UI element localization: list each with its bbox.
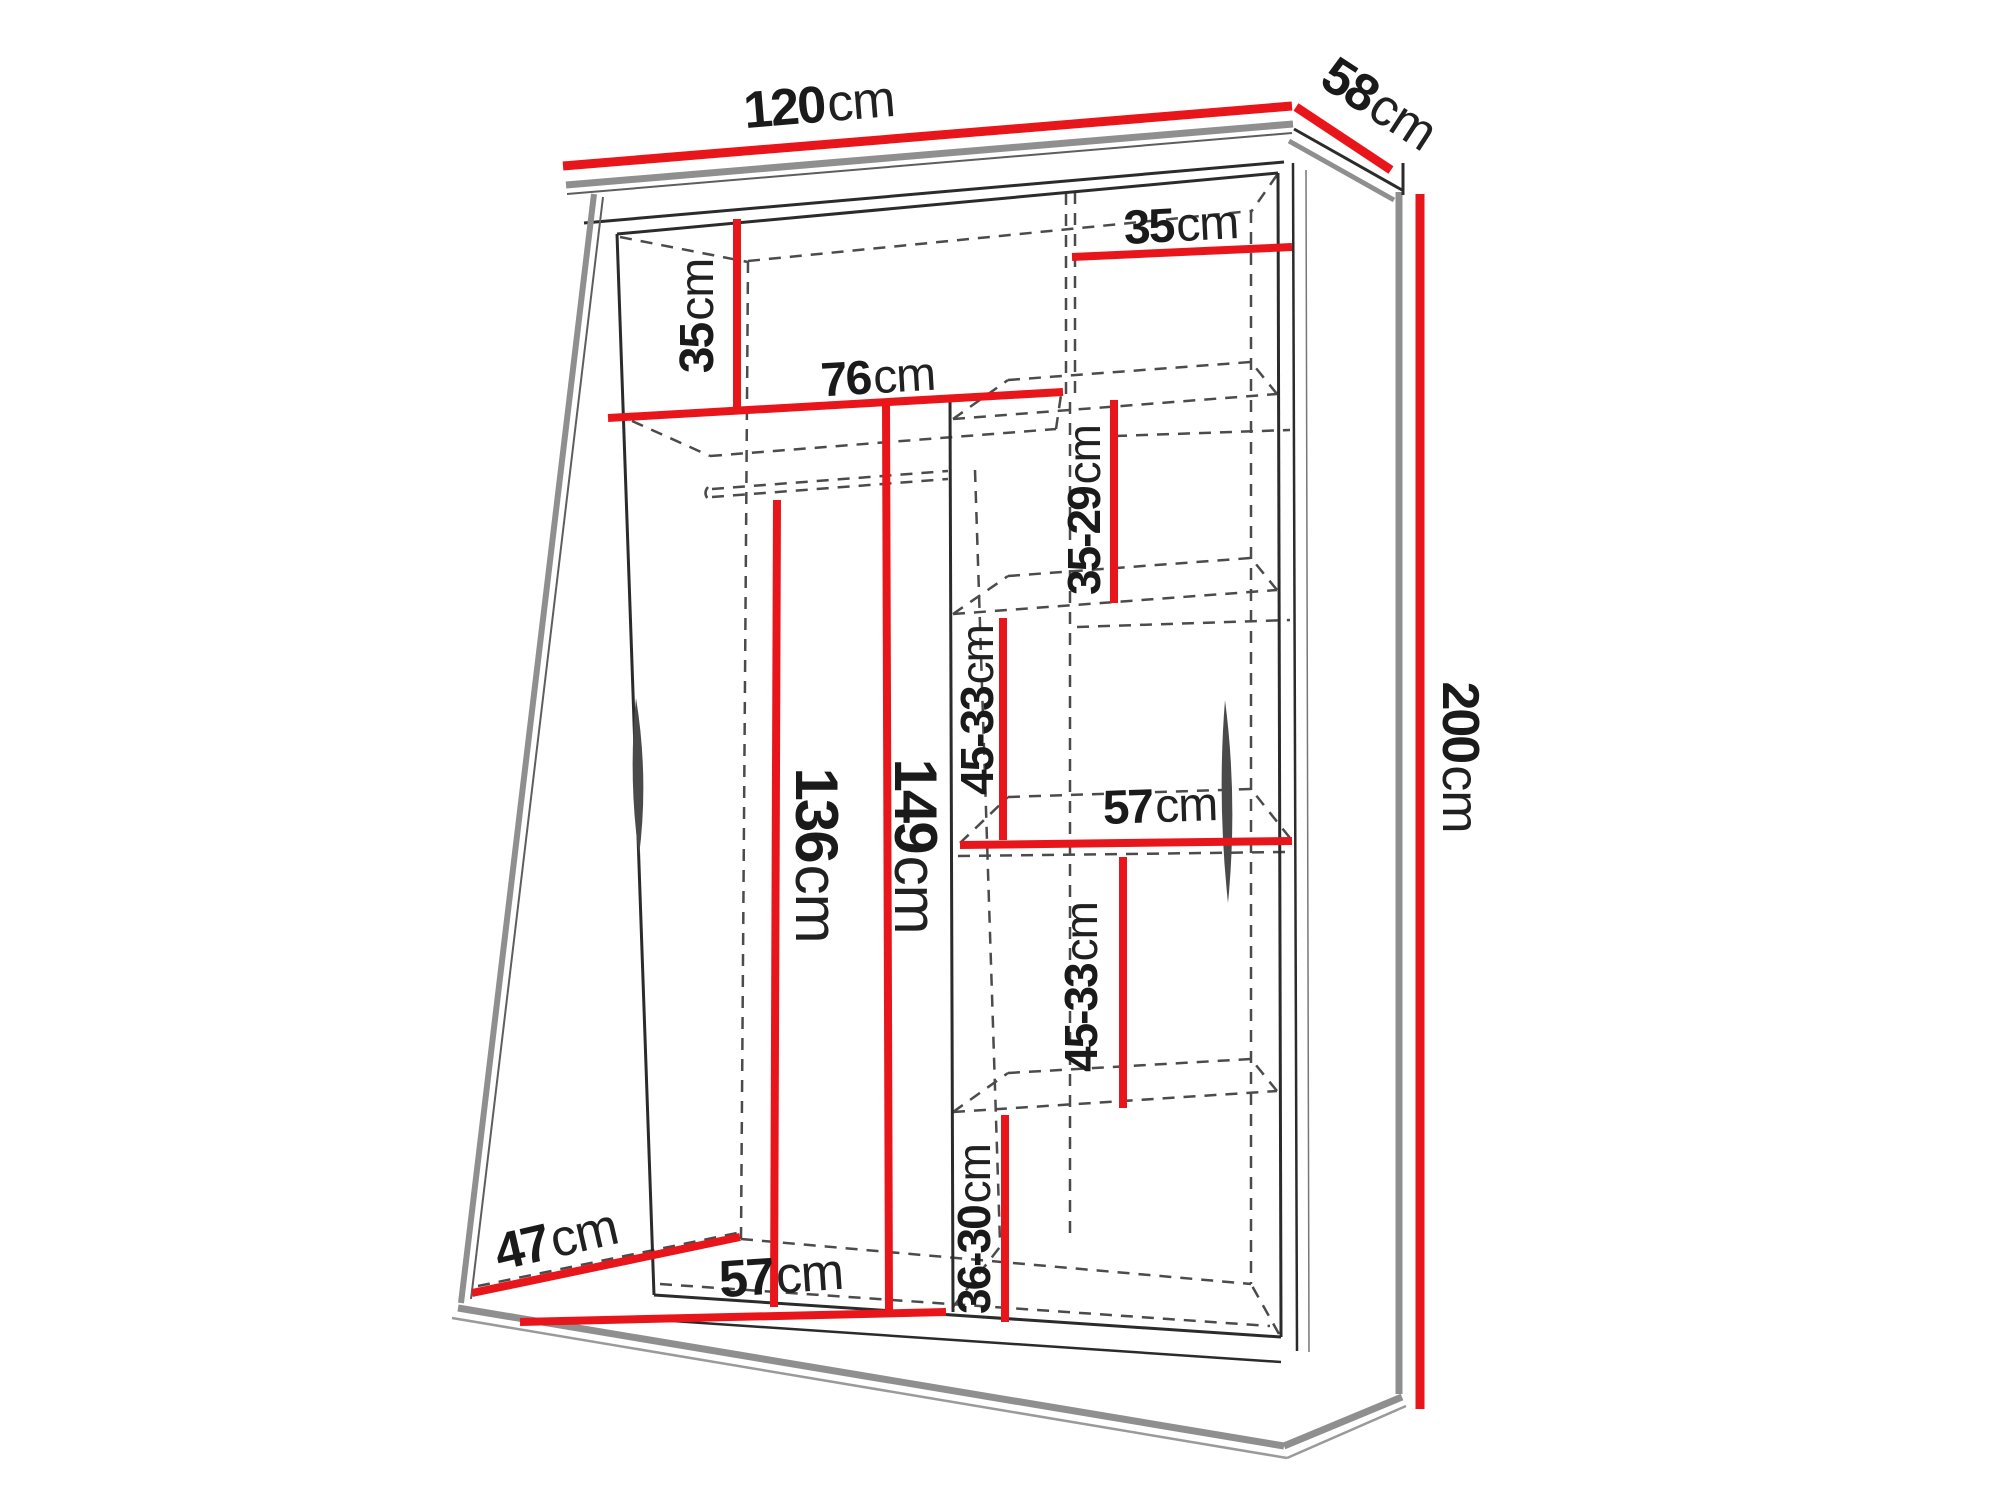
shelf3-diag-right	[1251, 789, 1290, 838]
hanging-rail-end	[706, 487, 709, 499]
shelf1-diag-right	[1251, 362, 1277, 394]
dim-line-57-bottom	[520, 1312, 946, 1322]
shelf1-back	[1008, 362, 1251, 380]
dim-label-136cm: 136cm	[786, 767, 846, 942]
bottom-right-diag	[1284, 1397, 1402, 1446]
dim-line-136	[774, 500, 777, 1307]
left-outer-edge-inner	[471, 197, 603, 1299]
top-right-depth-diag	[1251, 175, 1277, 212]
dim-line-57-shelf	[960, 841, 1292, 845]
shelf2-diag-right	[1251, 558, 1277, 590]
dim-label-45-33cm-lower: 45-33cm	[1058, 902, 1104, 1072]
front-right-edge	[1293, 163, 1297, 1351]
top-outer-edge-inner	[567, 133, 1292, 194]
opening-right-edge	[1278, 173, 1281, 1337]
shelf76-depth-diag	[632, 421, 710, 456]
bottom-shadow-line	[452, 1318, 1287, 1458]
bottom-right-shadow	[1287, 1406, 1406, 1458]
side-panel-front-line	[1306, 170, 1309, 1352]
dim-label-width-120cm: 120cm	[742, 73, 897, 137]
dim-label-76cm: 76cm	[819, 351, 936, 406]
shelf4-diag-left	[953, 1073, 1008, 1112]
dim-label-35-29cm: 35-29cm	[1061, 425, 1107, 595]
left-door-handle-groove	[633, 698, 644, 856]
shelf2-back	[1008, 558, 1251, 576]
shelf4-back	[1008, 1059, 1251, 1073]
shelf4-front	[953, 1091, 1277, 1112]
shelf2-bottom	[1077, 620, 1290, 627]
dim-label-36-30cm: 36-30cm	[951, 1144, 997, 1314]
right-door-handle-groove	[1222, 700, 1233, 903]
shelf4-diag-right	[1251, 1059, 1277, 1091]
shelf1-bottom	[1115, 430, 1290, 436]
bottom-right-depth-diag	[1251, 1284, 1279, 1334]
left-outer-edge	[461, 194, 594, 1303]
partition-back-vertical	[975, 470, 1000, 1242]
top-right-diag-gray	[1289, 141, 1394, 200]
shelf2-diag-left	[953, 576, 1008, 614]
dim-label-57cm-bottom: 57cm	[717, 1246, 844, 1307]
shelf3-bottom	[958, 852, 1288, 856]
dim-label-height-200cm: 200cm	[1434, 681, 1486, 832]
dim-label-149cm: 149cm	[885, 758, 945, 933]
wardrobe-dimension-diagram: 120cm 58cm 200cm 35cm 35cm 76cm 35-29cm …	[0, 0, 2000, 1500]
dim-label-57cm-shelf: 57cm	[1102, 781, 1218, 833]
dim-label-35cm-top-right: 35cm	[1123, 199, 1240, 253]
dim-label-35cm-top-left: 35cm	[674, 259, 722, 373]
dim-label-45-33cm-upper: 45-33cm	[954, 625, 1000, 795]
